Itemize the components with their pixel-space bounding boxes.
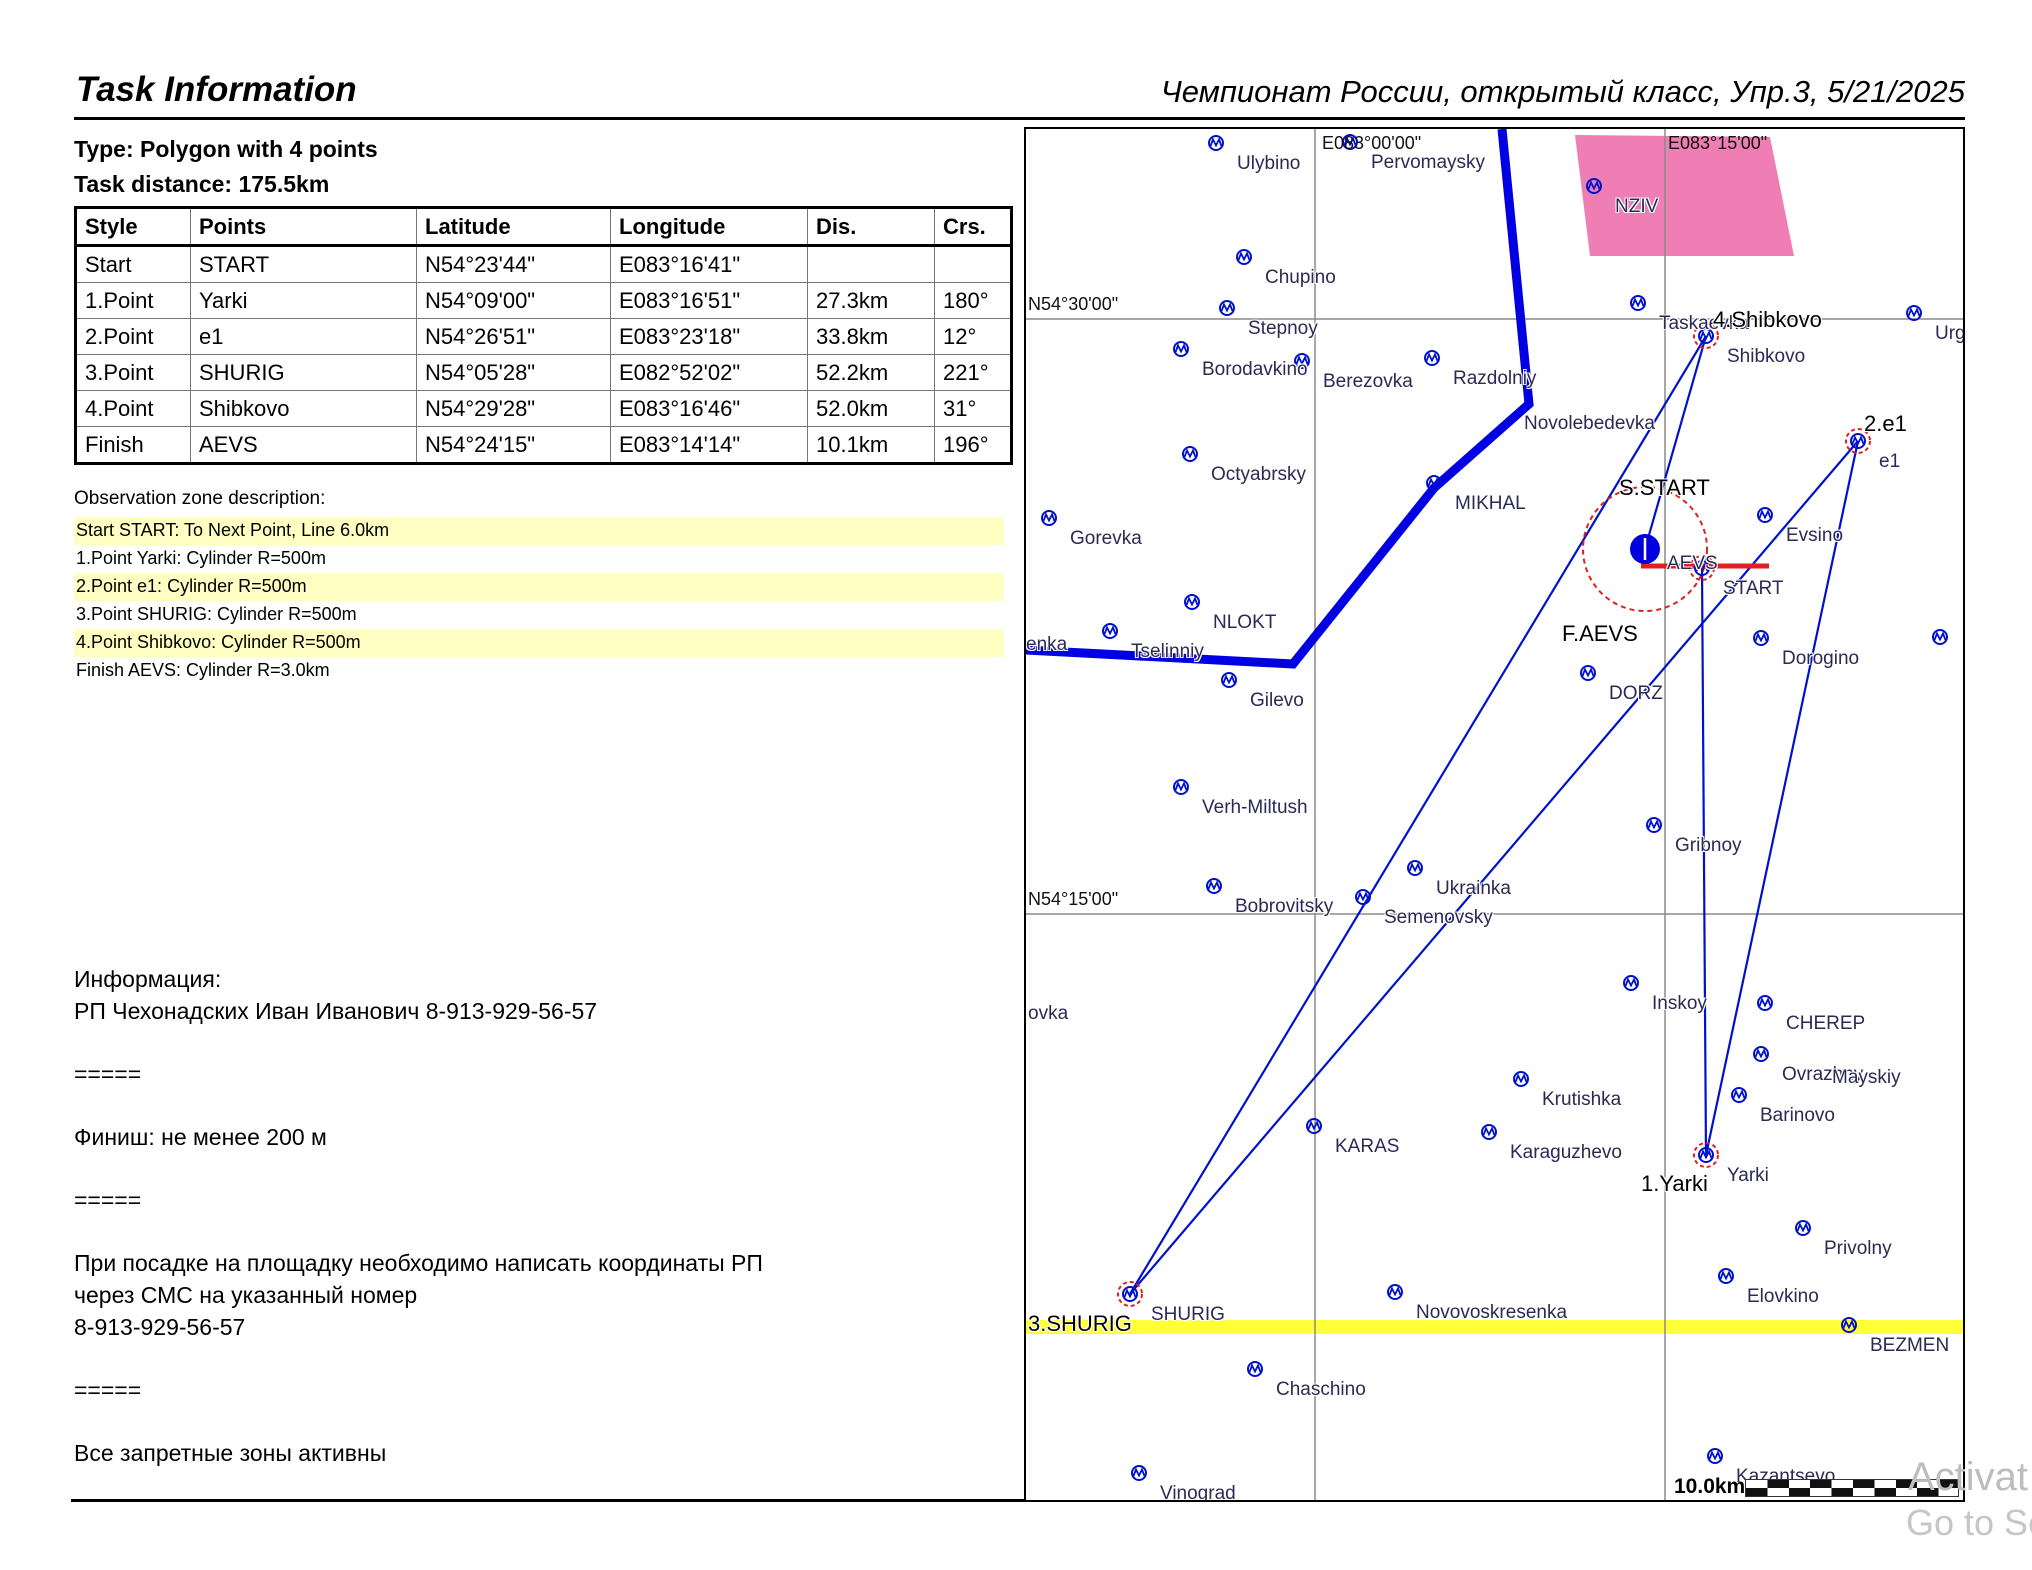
waypoint-icon-verh-miltush[interactable] (1171, 777, 1191, 797)
map-label: S.START (1619, 475, 1710, 501)
observation-zone-block: Observation zone description: Start STAR… (74, 488, 1004, 685)
waypoint-icon-gilevo[interactable] (1219, 670, 1239, 690)
waypoint-label: Urgun (1935, 323, 1965, 345)
table-cell: Finish (76, 427, 191, 464)
observation-zone-line: 4.Point Shibkovo: Cylinder R=500m (74, 629, 1004, 657)
table-row: StartSTARTN54°23'44"E083°16'41" (76, 246, 1012, 283)
table-cell: 2.Point (76, 319, 191, 355)
header-divider (74, 117, 1965, 120)
waypoint-icon-evsino[interactable] (1755, 505, 1775, 525)
waypoint-label: Pervomaysky (1371, 152, 1485, 174)
table-cell: 33.8km (808, 319, 935, 355)
waypoint-label: Semenovsky (1384, 907, 1493, 929)
table-cell: E083°16'41" (611, 246, 808, 283)
info-block: Информация:РП Чехонадских Иван Иванович … (74, 963, 763, 1500)
map-label: Novolebedevka (1524, 413, 1655, 435)
waypoint-label: Stepnoy (1248, 318, 1318, 340)
waypoint-icon-urgun[interactable] (1904, 303, 1924, 323)
table-cell: 12° (935, 319, 1012, 355)
waypoint-icon-tselinniy[interactable] (1100, 621, 1120, 641)
table-cell: 52.0km (808, 391, 935, 427)
waypoint-icon-taskaevka[interactable] (1628, 293, 1648, 313)
waypoint-icon-semenovsky[interactable] (1353, 887, 1373, 907)
map-label: ovka (1028, 1003, 1068, 1025)
table-cell: AEVS (191, 427, 417, 464)
table-cell: Yarki (191, 283, 417, 319)
observation-zone-line: 2.Point e1: Cylinder R=500m (74, 573, 1004, 601)
waypoint-icon-nlokt[interactable] (1182, 592, 1202, 612)
waypoint-icon-bobrovitsky[interactable] (1204, 876, 1224, 896)
column-header: Dis. (808, 208, 935, 246)
table-cell: START (191, 246, 417, 283)
waypoint-label: Razdolniy (1453, 368, 1536, 390)
waypoint-icon[interactable] (1930, 627, 1950, 647)
waypoint-label: Evsino (1786, 525, 1843, 547)
waypoint-icon-karas[interactable] (1304, 1116, 1324, 1136)
waypoint-icon-kazantsevo[interactable] (1705, 1446, 1725, 1466)
waypoint-label: Bobrovitsky (1235, 896, 1333, 918)
waypoint-label: Tselinniy (1131, 641, 1204, 663)
waypoint-icon-mikhal[interactable] (1424, 473, 1444, 493)
info-paragraph: ===== (74, 1184, 763, 1216)
waypoint-label: Gilevo (1250, 690, 1304, 712)
table-cell: N54°09'00" (417, 283, 611, 319)
waypoint-label: Octyabrsky (1211, 464, 1306, 486)
map-label: 3.SHURIG (1028, 1311, 1132, 1337)
table-cell (935, 246, 1012, 283)
table-cell: 221° (935, 355, 1012, 391)
waypoint-icon-karaguzhevo[interactable] (1479, 1122, 1499, 1142)
column-header: Points (191, 208, 417, 246)
waypoint-label: Shibkovo (1727, 346, 1805, 368)
waypoint-icon-octyabrsky[interactable] (1180, 444, 1200, 464)
waypoint-label: Gribnoy (1675, 835, 1742, 857)
waypoint-icon-barinovo[interactable] (1729, 1085, 1749, 1105)
waypoint-label: Chupino (1265, 267, 1336, 289)
map-label: 2.e1 (1864, 411, 1907, 437)
waypoint-label: Yarki (1727, 1165, 1769, 1187)
task-leg-line (1702, 568, 1706, 1155)
task-information-window: Task Information Чемпионат России, откры… (0, 0, 2032, 1570)
info-paragraph: ===== (74, 1374, 763, 1406)
observation-zone-line: 1.Point Yarki: Cylinder R=500m (74, 545, 1004, 573)
table-row: 1.PointYarkiN54°09'00"E083°16'51"27.3km1… (76, 283, 1012, 319)
waypoint-label: BEZMEN (1870, 1335, 1949, 1357)
observation-zone-line: Finish AEVS: Cylinder R=3.0km (74, 657, 1004, 685)
table-row: 2.Pointe1N54°26'51"E083°23'18"33.8km12° (76, 319, 1012, 355)
table-cell: Start (76, 246, 191, 283)
waypoint-icon-dorz[interactable] (1578, 663, 1598, 683)
waypoint-label: Krutishka (1542, 1089, 1621, 1111)
waypoint-label: NLOKT (1213, 612, 1276, 634)
table-cell: N54°29'28" (417, 391, 611, 427)
info-paragraph: Все запретные зоны активны (74, 1437, 763, 1469)
waypoint-label: Elovkino (1747, 1286, 1819, 1308)
info-paragraph: ===== (74, 1058, 763, 1090)
task-type: Type: Polygon with 4 points (74, 136, 378, 163)
table-row: FinishAEVSN54°24'15"E083°14'14"10.1km196… (76, 427, 1012, 464)
waypoint-icon-gorevka[interactable] (1039, 508, 1059, 528)
waypoint-label: Borodavkino (1202, 359, 1308, 381)
column-header: Latitude (417, 208, 611, 246)
table-cell: E083°14'14" (611, 427, 808, 464)
waypoint-label: Barinovo (1760, 1105, 1835, 1127)
task-leg-line (1706, 441, 1858, 1155)
table-cell: e1 (191, 319, 417, 355)
waypoint-icon-ukrainka[interactable] (1405, 858, 1425, 878)
waypoint-label: e1 (1879, 451, 1900, 473)
table-cell: E083°23'18" (611, 319, 808, 355)
info-paragraph: При посадке на площадку необходимо напис… (74, 1247, 763, 1343)
task-leg-line (1645, 336, 1706, 549)
windows-activation-watermark-2: Go to Set (1906, 1502, 2032, 1544)
table-cell: N54°23'44" (417, 246, 611, 283)
waypoint-icon-bezmen[interactable] (1839, 1315, 1859, 1335)
waypoint-label: Verh-Miltush (1202, 797, 1308, 819)
windows-activation-watermark: Activat (1908, 1455, 2028, 1500)
table-cell: E082°52'02" (611, 355, 808, 391)
waypoint-icon-yarki[interactable] (1696, 1145, 1716, 1165)
waypoint-label: Privolny (1824, 1238, 1892, 1260)
waypoint-label: SHURIG (1151, 1304, 1225, 1326)
map-label: Mayskiy (1832, 1067, 1901, 1089)
page-title: Task Information (76, 70, 357, 110)
table-cell: 31° (935, 391, 1012, 427)
waypoint-label: Gorevka (1070, 528, 1142, 550)
airspace-boundary-line (1026, 129, 1529, 664)
observation-zone-title: Observation zone description: (74, 488, 1004, 510)
waypoint-icon-chupino[interactable] (1234, 247, 1254, 267)
waypoint-icon-borodavkino[interactable] (1171, 339, 1191, 359)
table-cell: SHURIG (191, 355, 417, 391)
waypoint-label: Novovoskresenka (1416, 1302, 1567, 1324)
waypoint-icon-krutishka[interactable] (1511, 1069, 1531, 1089)
table-cell: 52.2km (808, 355, 935, 391)
waypoint-label: Dorogino (1782, 648, 1859, 670)
map-label: 4.Shibkovo (1713, 307, 1822, 333)
waypoint-label: KARAS (1335, 1136, 1399, 1158)
waypoint-label: Ukrainka (1436, 878, 1511, 900)
competition-title: Чемпионат России, открытый класс, Упр.3,… (1161, 74, 1965, 110)
column-header: Style (76, 208, 191, 246)
map-scale-label: 10.0km (1674, 1475, 1745, 1499)
grid-coordinate-label: E083°15'00" (1668, 133, 1767, 154)
table-cell: E083°16'46" (611, 391, 808, 427)
waypoint-icon-elovkino[interactable] (1716, 1266, 1736, 1286)
waypoint-icon-gribnoy[interactable] (1644, 815, 1664, 835)
task-distance: Task distance: 175.5km (74, 171, 329, 198)
waypoint-label: MIKHAL (1455, 493, 1526, 515)
waypoint-icon-dorogino[interactable] (1751, 628, 1771, 648)
map-label: 1.Yarki (1641, 1171, 1708, 1197)
map-label: AEVS (1667, 553, 1718, 575)
waypoint-label: DORZ (1609, 683, 1663, 705)
observation-zone-line: Start START: To Next Point, Line 6.0km (74, 517, 1004, 545)
waypoint-icon-novovoskresenka[interactable] (1385, 1282, 1405, 1302)
waypoint-icon-razdolniy[interactable] (1422, 348, 1442, 368)
waypoint-icon-ovrazhny[interactable] (1751, 1044, 1771, 1064)
footer-divider (71, 1499, 1026, 1502)
waypoint-label: START (1723, 578, 1784, 600)
table-cell: 180° (935, 283, 1012, 319)
waypoint-icon-cherep[interactable] (1755, 993, 1775, 1013)
column-header: Crs. (935, 208, 1012, 246)
observation-zone-line: 3.Point SHURIG: Cylinder R=500m (74, 601, 1004, 629)
table-cell: 10.1km (808, 427, 935, 464)
table-cell: 27.3km (808, 283, 935, 319)
grid-coordinate-label: N54°30'00" (1028, 294, 1118, 315)
waypoint-label: Berezovka (1323, 371, 1413, 393)
task-points-table: StylePointsLatitudeLongitudeDis.Crs. Sta… (74, 206, 1013, 465)
waypoint-label: NZIV (1615, 196, 1658, 218)
waypoint-label: Vinograd (1160, 1483, 1236, 1502)
grid-coordinate-label: E083°00'00" (1322, 133, 1421, 154)
waypoint-icon-nziv[interactable] (1584, 176, 1604, 196)
waypoint-icon-stepnoy[interactable] (1217, 298, 1237, 318)
waypoint-label: Chaschino (1276, 1379, 1366, 1401)
table-cell: N54°26'51" (417, 319, 611, 355)
table-cell: 4.Point (76, 391, 191, 427)
table-cell (808, 246, 935, 283)
table-cell: E083°16'51" (611, 283, 808, 319)
waypoint-label: CHEREP (1786, 1013, 1865, 1035)
table-cell: 1.Point (76, 283, 191, 319)
table-cell: 196° (935, 427, 1012, 464)
waypoint-label: Inskoy (1652, 993, 1707, 1015)
table-row: 3.PointSHURIGN54°05'28"E082°52'02"52.2km… (76, 355, 1012, 391)
map-label: F.AEVS (1562, 621, 1638, 647)
waypoint-icon-inskoy[interactable] (1621, 973, 1641, 993)
waypoint-icon-chaschino[interactable] (1245, 1359, 1265, 1379)
waypoint-icon-vinograd[interactable] (1129, 1463, 1149, 1483)
map-vector-layer (1026, 129, 1965, 1502)
map[interactable]: UlybinoPervomayskyNZIVChupinoStepnoyTask… (1024, 127, 1965, 1502)
waypoint-icon-ulybino[interactable] (1206, 133, 1226, 153)
waypoint-icon-shurig[interactable] (1120, 1284, 1140, 1304)
table-cell: 3.Point (76, 355, 191, 391)
grid-coordinate-label: N54°15'00" (1028, 889, 1118, 910)
info-paragraph: Информация:РП Чехонадских Иван Иванович … (74, 963, 763, 1027)
table-row: 4.PointShibkovoN54°29'28"E083°16'46"52.0… (76, 391, 1012, 427)
waypoint-label: Karaguzhevo (1510, 1142, 1622, 1164)
info-paragraph: Финиш: не менее 200 м (74, 1121, 763, 1153)
table-header-row: StylePointsLatitudeLongitudeDis.Crs. (76, 208, 1012, 246)
table-cell: N54°05'28" (417, 355, 611, 391)
column-header: Longitude (611, 208, 808, 246)
map-label: enka (1026, 634, 1067, 656)
waypoint-icon-privolny[interactable] (1793, 1218, 1813, 1238)
waypoint-label: Ulybino (1237, 153, 1300, 175)
table-cell: Shibkovo (191, 391, 417, 427)
table-cell: N54°24'15" (417, 427, 611, 464)
